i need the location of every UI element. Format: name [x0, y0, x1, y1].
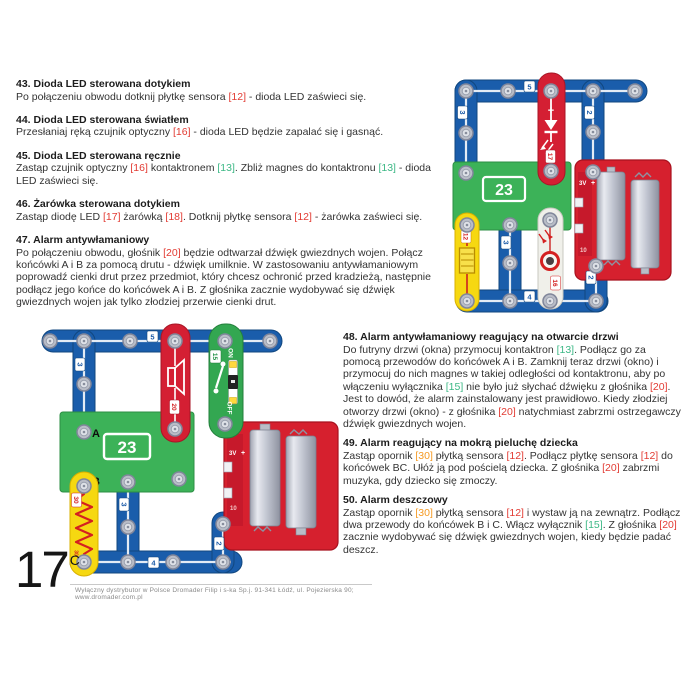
part-ref: [12] — [228, 91, 246, 103]
part-ref: [20] — [659, 519, 677, 531]
wire-3-label: 3 — [76, 362, 85, 366]
page-number-value: 17 — [15, 541, 68, 598]
section-title: 50. Alarm deszczowy — [343, 494, 681, 507]
battery-voltage-label: 3V — [579, 181, 586, 187]
instruction-section: 45. Dioda LED sterowana ręcznieZastąp cz… — [16, 150, 440, 187]
wire-3-label: 3 — [458, 110, 467, 114]
wire-5-label: 5 — [527, 83, 531, 92]
led-part-number: 17 — [546, 153, 553, 161]
switch-part-number: 15 — [211, 353, 218, 361]
circuit-diagram-top: 23 3V + 10 + — [445, 68, 685, 320]
battery-plus-label: + — [591, 180, 595, 187]
part-ref: [30] — [415, 450, 433, 462]
wire-3-label: 3 — [502, 240, 511, 244]
section-title: 48. Alarm antywłamaniowy reagujący na ot… — [343, 331, 681, 344]
battery-part-number: 10 — [230, 506, 237, 512]
part-ref: [13] — [217, 162, 235, 174]
section-title: 46. Żarówka sterowana dotykiem — [16, 198, 440, 211]
part-ref: [12] — [506, 507, 524, 519]
part-ref: [18] — [165, 211, 183, 223]
section-title: 44. Dioda LED sterowana światłem — [16, 114, 440, 127]
part-ref: [12] — [294, 211, 312, 223]
switch-on-label: ON — [227, 348, 234, 358]
part-ref: [12] — [506, 450, 524, 462]
part-ref: [17] — [103, 211, 121, 223]
manual-page: 43. Dioda LED sterowana dotykiemPo połąc… — [0, 0, 685, 685]
ic-number: 23 — [495, 182, 513, 199]
instruction-section: 43. Dioda LED sterowana dotykiemPo połąc… — [16, 78, 440, 103]
instruction-section: 46. Żarówka sterowana dotykiemZastąp dio… — [16, 198, 440, 223]
section-title: 49. Alarm reagujący na mokrą pieluchę dz… — [343, 437, 681, 450]
part-ref: [13] — [378, 162, 396, 174]
terminal-a-label: A — [92, 428, 100, 440]
battery-clip — [575, 224, 583, 233]
section-title: 45. Dioda LED sterowana ręcznie — [16, 150, 440, 163]
part-ref: [16] — [130, 162, 148, 174]
right-text-column: 48. Alarm antywłamaniowy reagujący na ot… — [343, 331, 681, 563]
part-ref: [13] — [557, 344, 575, 356]
wire-5-label: 5 — [150, 333, 154, 342]
part-ref: [16] — [173, 126, 191, 138]
section-title: 43. Dioda LED sterowana dotykiem — [16, 78, 440, 91]
battery-clip — [224, 488, 232, 498]
section-body: Zastąp opornik [30] płytką sensora [12].… — [343, 450, 681, 487]
footer-divider — [70, 584, 372, 585]
section-title: 47. Alarm antywłamaniowy — [16, 234, 440, 247]
section-body: Przesłaniaj ręką czujnik optyczny [16] -… — [16, 126, 440, 138]
part-ref: [20] — [498, 406, 516, 418]
section-body: Zastąp opornik [30] płytką sensora [12] … — [343, 507, 681, 557]
part-ref: [20] — [602, 462, 620, 474]
section-body: Zastąp czujnik optyczny [16] kontaktrone… — [16, 162, 440, 187]
section-body: Zastąp diodę LED [17] żarówką [18]. Dotk… — [16, 211, 440, 223]
battery-cell — [286, 430, 316, 535]
footer-text: Wyłączny dystrybutor w Polsce Dromader F… — [75, 587, 385, 601]
battery-clip — [224, 462, 232, 472]
left-text-column: 43. Dioda LED sterowana dotykiemPo połąc… — [16, 78, 440, 320]
ic-number: 23 — [118, 438, 137, 457]
instruction-section: 48. Alarm antywłamaniowy reagujący na ot… — [343, 331, 681, 430]
page-number: 17C — [15, 544, 78, 595]
part-ref: [15] — [446, 381, 464, 393]
wire-2-label: 2 — [215, 541, 224, 545]
part-ref: [20] — [163, 247, 181, 259]
battery-cell — [597, 167, 625, 265]
instruction-section: 50. Alarm deszczowyZastąp opornik [30] p… — [343, 494, 681, 556]
part-ref: [12] — [641, 450, 659, 462]
instruction-section: 44. Dioda LED sterowana światłemPrzesłan… — [16, 114, 440, 139]
wire-3-label: 3 — [120, 502, 129, 506]
battery-part-number: 10 — [580, 248, 587, 254]
section-body: Do futryny drzwi (okna) przymocuj kontak… — [343, 344, 681, 431]
switch-off-label: OFF — [226, 402, 233, 415]
circuit-diagram-bottom: 23 A B 3V + 10 — [28, 322, 348, 577]
battery-plus-label: + — [241, 450, 245, 457]
page-number-superscript: C — [70, 552, 80, 568]
speaker-part-number: 20 — [170, 403, 177, 411]
plate-part-number: 12 — [462, 233, 469, 241]
section-body: Po połączeniu obwodu dotknij płytkę sens… — [16, 91, 440, 103]
instruction-section: 49. Alarm reagujący na mokrą pieluchę dz… — [343, 437, 681, 487]
battery-cell — [250, 424, 280, 531]
part-ref: [15] — [585, 519, 603, 531]
battery-cell — [631, 173, 659, 274]
part-ref: [20] — [650, 381, 668, 393]
part-ref: [30] — [415, 507, 433, 519]
optical-part-number: 16 — [551, 279, 558, 287]
wire-2-label: 2 — [587, 275, 596, 279]
battery-voltage-label: 3V — [229, 451, 236, 457]
resistor-part-number: 30 — [72, 496, 79, 504]
battery-clip — [575, 198, 583, 207]
battery-holder: 3V + 10 — [224, 422, 338, 550]
instruction-section: 47. Alarm antywłamaniowyPo połączeniu ob… — [16, 234, 440, 309]
section-body: Po połączeniu obwodu, głośnik [20] będzi… — [16, 247, 440, 309]
wire-2-label: 2 — [585, 110, 594, 114]
